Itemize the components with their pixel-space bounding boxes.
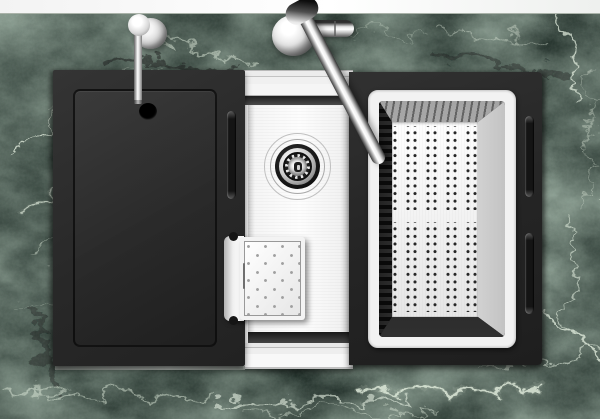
colander-perforated-plate	[392, 122, 478, 317]
drain-center-knob	[294, 162, 302, 172]
sink-frame-right	[349, 72, 542, 365]
colander-holes-lower	[392, 222, 478, 312]
sink-rim-under-board	[55, 366, 245, 370]
soap-dispenser-knob	[128, 14, 150, 36]
board-finger-hole	[139, 103, 157, 120]
drip-tray	[240, 237, 305, 320]
kitchen-sink-product-photo	[0, 0, 600, 419]
bracket-notch-top	[229, 232, 238, 241]
board-recessed-panel	[73, 89, 217, 347]
sink-rim-groove	[243, 96, 353, 105]
drip-tray-handle	[243, 263, 245, 289]
drip-tray-perforated-plate	[244, 241, 301, 316]
sink-rim-bottom-ledge	[243, 343, 353, 354]
sink-rim-bottom-band	[243, 354, 353, 369]
handle-slot-top	[525, 116, 534, 197]
handle-slot-bottom	[525, 233, 534, 314]
bracket-notch-bottom	[229, 316, 238, 325]
sink-basin-section	[243, 70, 353, 369]
board-handle-slot	[227, 111, 236, 199]
sink-cover-board	[53, 70, 245, 366]
soap-dispenser-tube	[134, 30, 142, 104]
colander-opening	[379, 101, 505, 337]
sink-rim-groove-bottom	[248, 332, 352, 343]
colander-holes-upper	[392, 126, 478, 210]
colander-basket	[368, 90, 516, 348]
